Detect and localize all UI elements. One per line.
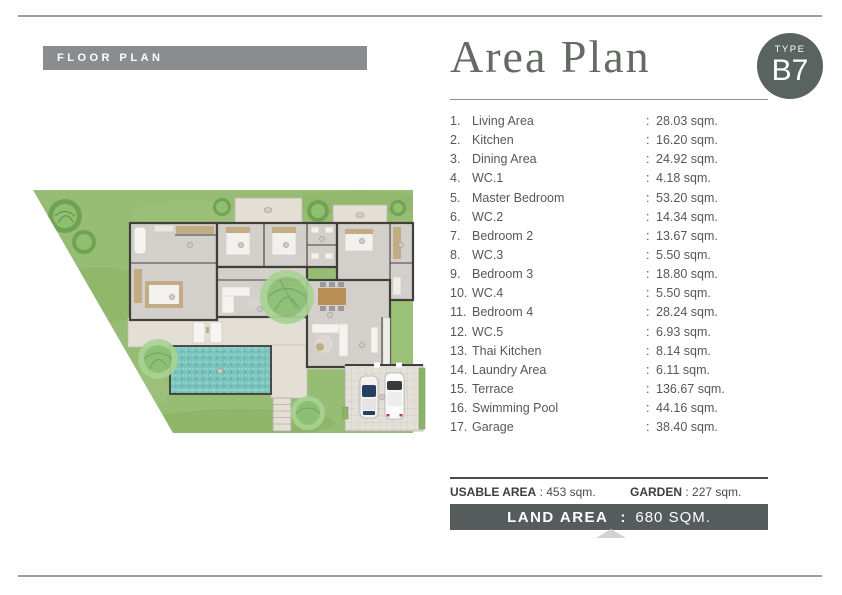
row-separator: : [646,210,656,224]
area-list-row: 15. Terrace : 136.67 sqm. [450,382,768,401]
dining-table [318,288,346,305]
area-list-row: 13. Thai Kitchen : 8.14 sqm. [450,344,768,363]
row-room-name: Garage [472,420,646,434]
row-room-name: Thai Kitchen [472,344,646,358]
usable-area-value: : 453 sqm. [540,485,596,499]
area-list-row: 12. WC.5 : 6.93 sqm. [450,325,768,344]
row-number: 6. [450,210,472,224]
area-list-row: 7. Bedroom 2 : 13.67 sqm. [450,229,768,248]
bottom-border-line [18,575,822,577]
row-separator: : [646,267,656,281]
tree [138,339,178,379]
row-area-value: 5.50 sqm. [656,286,768,300]
row-separator: : [646,401,656,415]
row-number: 4. [450,171,472,185]
top-border-line [18,15,822,17]
row-room-name: Master Bedroom [472,191,646,205]
area-list-row: 10. WC.4 : 5.50 sqm. [450,286,768,305]
row-area-value: 4.18 sqm. [656,171,768,185]
row-area-value: 53.20 sqm. [656,191,768,205]
row-number: 16. [450,401,472,415]
bathtub [134,227,146,254]
tree [48,199,82,233]
row-number: 15. [450,382,472,396]
type-badge-code: B7 [757,55,823,87]
row-area-value: 44.16 sqm. [656,401,768,415]
row-number: 8. [450,248,472,262]
car-blue-windshield [360,376,378,418]
area-list-row: 11. Bedroom 4 : 28.24 sqm. [450,305,768,324]
garden-value: : 227 sqm. [685,485,741,499]
row-number: 17. [450,420,472,434]
row-number: 5. [450,191,472,205]
row-area-value: 18.80 sqm. [656,267,768,281]
usable-area-label: USABLE AREA [450,485,536,499]
wardrobe [134,269,142,303]
row-area-value: 28.24 sqm. [656,305,768,319]
row-area-value: 14.34 sqm. [656,210,768,224]
row-room-name: WC.4 [472,286,646,300]
car-white [385,373,404,419]
area-list-row: 14. Laundry Area : 6.11 sqm. [450,363,768,382]
row-area-value: 24.92 sqm. [656,152,768,166]
row-area-value: 8.14 sqm. [656,344,768,358]
row-area-value: 6.11 sqm. [656,363,768,377]
row-room-name: Bedroom 3 [472,267,646,281]
floor-plan-illustration [30,185,430,447]
stairs [273,398,291,431]
row-room-name: WC.5 [472,325,646,339]
kitchen-island [371,327,378,353]
row-number: 14. [450,363,472,377]
area-list-row: 3. Dining Area : 24.92 sqm. [450,152,768,171]
row-number: 13. [450,344,472,358]
row-area-value: 38.40 sqm. [656,420,768,434]
area-list-row: 8. WC.3 : 5.50 sqm. [450,248,768,267]
sun-lounger [210,322,222,343]
tree [213,198,231,216]
area-list-row: 17. Garage : 38.40 sqm. [450,420,768,439]
land-area-separator: : [620,509,625,526]
area-list-row: 4. WC.1 : 4.18 sqm. [450,171,768,190]
row-separator: : [646,325,656,339]
row-room-name: Laundry Area [472,363,646,377]
row-area-value: 136.67 sqm. [656,382,768,396]
row-separator: : [646,133,656,147]
laundry-units [393,277,401,295]
page-title: Area Plan [450,30,750,83]
row-room-name: Swimming Pool [472,401,646,415]
sun-lounger [193,322,205,343]
area-list-row: 2. Kitchen : 16.20 sqm. [450,133,768,152]
closet [176,226,214,234]
row-separator: : [646,286,656,300]
summary-row: USABLE AREA : 453 sqm. GARDEN : 227 sqm. [450,485,768,501]
row-separator: : [646,114,656,128]
row-separator: : [646,363,656,377]
row-room-name: Bedroom 2 [472,229,646,243]
area-list: 1. Living Area : 28.03 sqm. 2. Kitchen :… [450,114,768,439]
row-room-name: Terrace [472,382,646,396]
land-area-value: 680 SQM. [635,509,711,526]
land-area-label: LAND AREA [507,509,608,526]
row-room-name: WC.3 [472,248,646,262]
area-list-row: 1. Living Area : 28.03 sqm. [450,114,768,133]
vanity [154,225,174,232]
row-separator: : [646,420,656,434]
brochure-page: FLOOR PLAN [0,0,842,595]
row-room-name: WC.1 [472,171,646,185]
row-area-value: 28.03 sqm. [656,114,768,128]
row-area-value: 16.20 sqm. [656,133,768,147]
row-number: 2. [450,133,472,147]
row-room-name: Kitchen [472,133,646,147]
row-room-name: Dining Area [472,152,646,166]
garden-label: GARDEN [630,485,682,499]
row-room-name: WC.2 [472,210,646,224]
row-area-value: 6.93 sqm. [656,325,768,339]
row-separator: : [646,191,656,205]
tree [291,396,325,430]
row-number: 3. [450,152,472,166]
floor-plan-banner-label: FLOOR PLAN [57,52,164,64]
area-list-row: 6. WC.2 : 14.34 sqm. [450,210,768,229]
fold-triangle [596,529,626,538]
row-number: 7. [450,229,472,243]
type-badge: TYPE B7 [757,33,823,99]
row-area-value: 13.67 sqm. [656,229,768,243]
row-number: 12. [450,325,472,339]
area-list-row: 5. Master Bedroom : 53.20 sqm. [450,191,768,210]
row-area-value: 5.50 sqm. [656,248,768,262]
row-room-name: Living Area [472,114,646,128]
tree-large [260,270,314,324]
area-list-row: 16. Swimming Pool : 44.16 sqm. [450,401,768,420]
row-separator: : [646,248,656,262]
row-separator: : [646,305,656,319]
row-separator: : [646,171,656,185]
floor-plan-svg [30,185,430,447]
row-separator: : [646,229,656,243]
floor-plan-banner: FLOOR PLAN [43,46,367,70]
area-list-row: 9. Bedroom 3 : 18.80 sqm. [450,267,768,286]
tree [307,200,329,222]
row-separator: : [646,152,656,166]
row-number: 9. [450,267,472,281]
row-separator: : [646,344,656,358]
title-underline [450,99,768,100]
row-room-name: Bedroom 4 [472,305,646,319]
tree [390,200,406,216]
row-number: 10. [450,286,472,300]
row-separator: : [646,382,656,396]
land-area-banner: LAND AREA : 680 SQM. [450,504,768,530]
tree [72,230,96,254]
summary-divider [450,477,768,479]
kitchen-counter [383,318,390,366]
row-number: 1. [450,114,472,128]
row-number: 11. [450,305,472,319]
